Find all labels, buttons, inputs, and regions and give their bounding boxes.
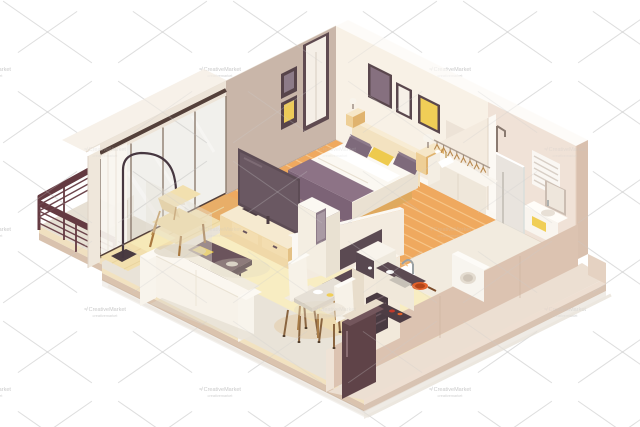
svg-text:creativemarket: creativemarket <box>208 74 234 78</box>
svg-text:≉ CreativeMarket: ≉ CreativeMarket <box>199 67 241 73</box>
svg-text:creativemarket: creativemarket <box>208 234 234 238</box>
svg-text:creativemarket: creativemarket <box>323 154 349 158</box>
svg-text:creativemarket: creativemarket <box>93 314 119 318</box>
svg-text:creativemarket: creativemarket <box>323 314 349 318</box>
svg-text:creativemarket: creativemarket <box>553 154 579 158</box>
svg-text:≉ CreativeMarket: ≉ CreativeMarket <box>0 387 11 393</box>
svg-text:≉ CreativeMarket: ≉ CreativeMarket <box>199 227 241 233</box>
svg-text:≉ CreativeMarket: ≉ CreativeMarket <box>199 387 241 393</box>
svg-text:≉ CreativeMarket: ≉ CreativeMarket <box>84 307 126 313</box>
svg-text:creativemarket: creativemarket <box>438 74 464 78</box>
svg-text:≉ CreativeMarket: ≉ CreativeMarket <box>429 67 471 73</box>
svg-text:≉ CreativeMarket: ≉ CreativeMarket <box>314 307 356 313</box>
svg-text:creativemarket: creativemarket <box>553 314 579 318</box>
svg-text:creativemarket: creativemarket <box>208 394 234 398</box>
svg-text:≉ CreativeMarket: ≉ CreativeMarket <box>0 67 11 73</box>
svg-text:≉ CreativeMarket: ≉ CreativeMarket <box>429 227 471 233</box>
svg-text:≉ CreativeMarket: ≉ CreativeMarket <box>84 147 126 153</box>
svg-text:≉ CreativeMarket: ≉ CreativeMarket <box>544 147 586 153</box>
svg-text:creativemarket: creativemarket <box>438 394 464 398</box>
svg-text:≉ CreativeMarket: ≉ CreativeMarket <box>544 307 586 313</box>
svg-text:creativemarket: creativemarket <box>93 154 119 158</box>
svg-text:≉ CreativeMarket: ≉ CreativeMarket <box>0 227 11 233</box>
svg-text:≉ CreativeMarket: ≉ CreativeMarket <box>314 147 356 153</box>
svg-text:≉ CreativeMarket: ≉ CreativeMarket <box>429 387 471 393</box>
svg-text:creativemarket: creativemarket <box>438 234 464 238</box>
